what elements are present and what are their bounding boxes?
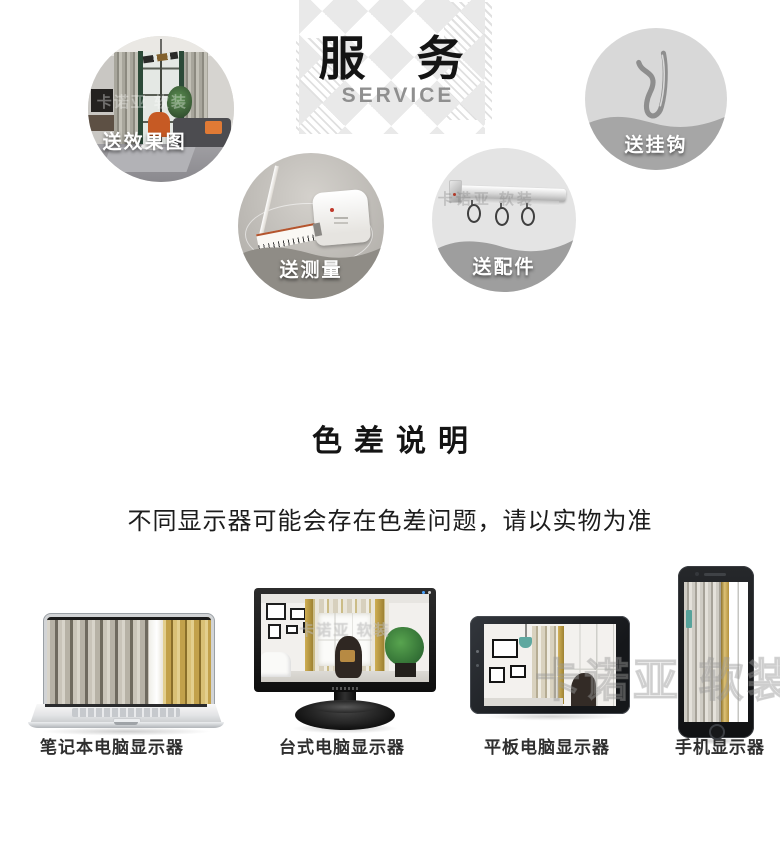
device-label-desktop: 台式电脑显示器 (262, 733, 422, 758)
room-orange-pillow (205, 121, 223, 134)
service-badge-label: 送测量 (238, 255, 384, 282)
scene-plant-pot (395, 663, 415, 677)
room-plant (167, 86, 192, 118)
monitor-stand-base-top (313, 701, 377, 713)
tablet-screen (484, 624, 616, 706)
laptop-screen (44, 614, 214, 707)
service-subtitle: SERVICE (304, 84, 492, 108)
service-badge-label: 送挂钩 (585, 130, 727, 157)
device-label-laptop: 笔记本电脑显示器 (32, 733, 192, 758)
pendant-lamp-cord (525, 624, 527, 638)
phone-home-button (709, 724, 725, 740)
monitor-screen: 卡诺亚 软装 (261, 594, 429, 682)
picture-frame (489, 667, 505, 683)
laptop-bezel-top (47, 617, 211, 620)
picture-frame (492, 639, 518, 659)
service-item-effect-render: 卡诺亚 软装 送效果图 (88, 36, 234, 182)
service-item-hooks: 送挂钩 (585, 28, 727, 170)
tablet-camera-dots (476, 650, 479, 653)
room-tv (91, 89, 113, 112)
service-item-measure: 送测量 (238, 153, 384, 299)
device-label-tablet: 平板电脑显示器 (467, 733, 627, 758)
phone-camera (695, 572, 699, 576)
curtain-product-detail-page: 服 务 SERVICE 卡诺亚 软装 送效果图 (0, 0, 780, 852)
service-item-accessories: 卡诺亚 软装 送配件 (432, 148, 576, 292)
room-pendant-lamp-stem (160, 39, 162, 55)
laptop-base-notch (114, 722, 138, 725)
scene-window (729, 582, 748, 722)
laptop-keyboard-deck (30, 704, 222, 724)
service-title: 服 务 (298, 20, 486, 89)
laptop-screen-gray-curtain (47, 617, 149, 707)
teal-pendant-lamp (686, 610, 692, 628)
phone-screen (684, 582, 748, 722)
scene-gray-curtain (684, 582, 721, 722)
phone-speaker (704, 573, 726, 576)
color-note-body: 不同显示器可能会存在色差问题，请以实物为准 (0, 501, 780, 536)
scene-chair (571, 673, 596, 706)
picture-frame (510, 665, 526, 678)
watermark-text: 卡诺亚 软装 (271, 619, 419, 640)
scene-floor (484, 698, 563, 706)
laptop-screen-wall-gap (149, 617, 165, 707)
service-badge-label: 送配件 (432, 252, 576, 279)
scene-sofa (261, 652, 291, 677)
scene-chair-cushion (340, 650, 355, 661)
laptop-screen-gold-curtain (163, 617, 211, 707)
scene-curtains (532, 626, 561, 703)
service-badge-label: 送效果图 (103, 127, 187, 154)
laptop-hinge (45, 704, 206, 707)
teal-pendant-lamp (519, 637, 532, 648)
laptop-keyboard (72, 708, 180, 717)
tablet-shadow (478, 712, 624, 721)
monitor-brand-mark (332, 687, 358, 690)
color-note-title: 色差说明 (0, 416, 780, 460)
scene-gold-stripe (721, 582, 729, 722)
